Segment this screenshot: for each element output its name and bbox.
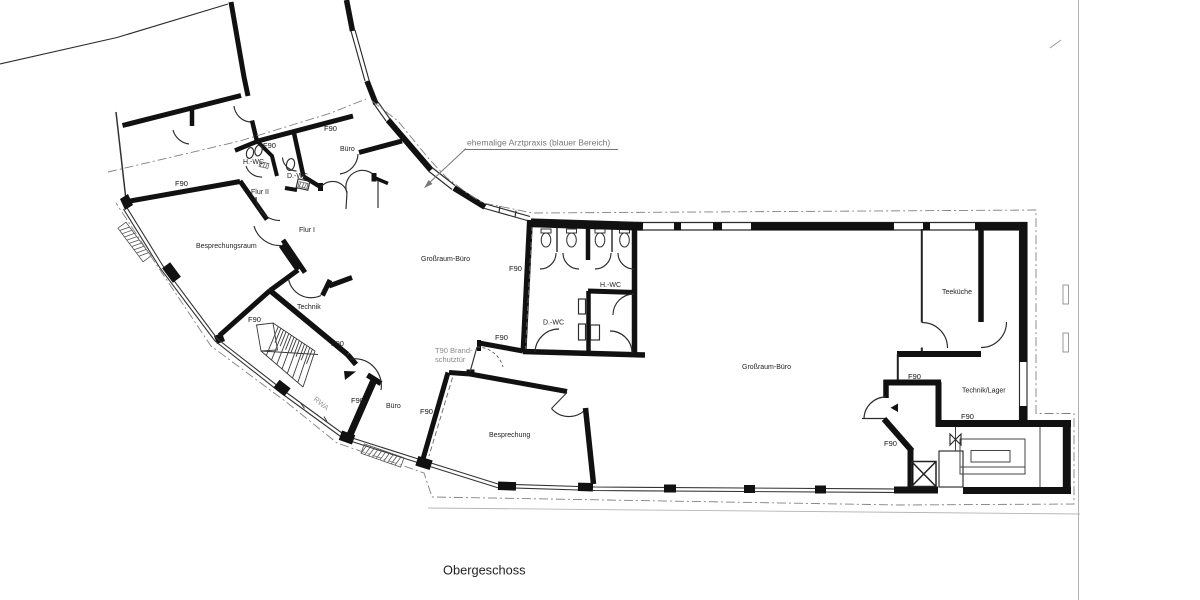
svg-text:F90: F90 xyxy=(509,264,522,273)
svg-text:F90: F90 xyxy=(908,372,921,381)
svg-text:Büro: Büro xyxy=(340,146,355,153)
svg-text:Besprechungsraum: Besprechungsraum xyxy=(196,243,257,250)
svg-text:F90: F90 xyxy=(495,333,508,342)
svg-text:F90: F90 xyxy=(331,339,344,348)
svg-text:Flur II: Flur II xyxy=(251,189,269,196)
svg-text:T90 Brand-: T90 Brand- xyxy=(435,346,473,355)
svg-text:Großraum-Büro: Großraum-Büro xyxy=(421,256,470,263)
svg-text:ehemalige Arztpraxis (blauer B: ehemalige Arztpraxis (blauer Bereich) xyxy=(467,138,610,148)
svg-text:Obergeschoss: Obergeschoss xyxy=(443,563,526,578)
svg-text:F90: F90 xyxy=(248,315,261,324)
svg-text:F90: F90 xyxy=(420,407,433,416)
svg-text:D.-WC: D.-WC xyxy=(543,320,564,327)
svg-text:D.-WC: D.-WC xyxy=(287,173,308,180)
svg-text:Großraum-Büro: Großraum-Büro xyxy=(742,364,791,371)
svg-text:F90: F90 xyxy=(961,412,974,421)
svg-text:schutztür: schutztür xyxy=(435,355,466,364)
svg-text:F90: F90 xyxy=(175,179,188,188)
svg-text:Flur I: Flur I xyxy=(299,227,315,234)
svg-text:H.-WC: H.-WC xyxy=(243,159,264,166)
svg-text:H.-WC: H.-WC xyxy=(600,282,621,289)
svg-text:Teeküche: Teeküche xyxy=(942,289,972,296)
svg-text:Technik/Lager: Technik/Lager xyxy=(962,388,1006,395)
svg-text:F90: F90 xyxy=(351,396,364,405)
svg-text:Büro: Büro xyxy=(386,403,401,410)
svg-text:F90: F90 xyxy=(324,124,337,133)
svg-text:Technik: Technik xyxy=(297,304,321,311)
svg-text:Besprechung: Besprechung xyxy=(489,432,530,439)
svg-text:F90: F90 xyxy=(263,141,276,150)
svg-text:F90: F90 xyxy=(884,439,897,448)
